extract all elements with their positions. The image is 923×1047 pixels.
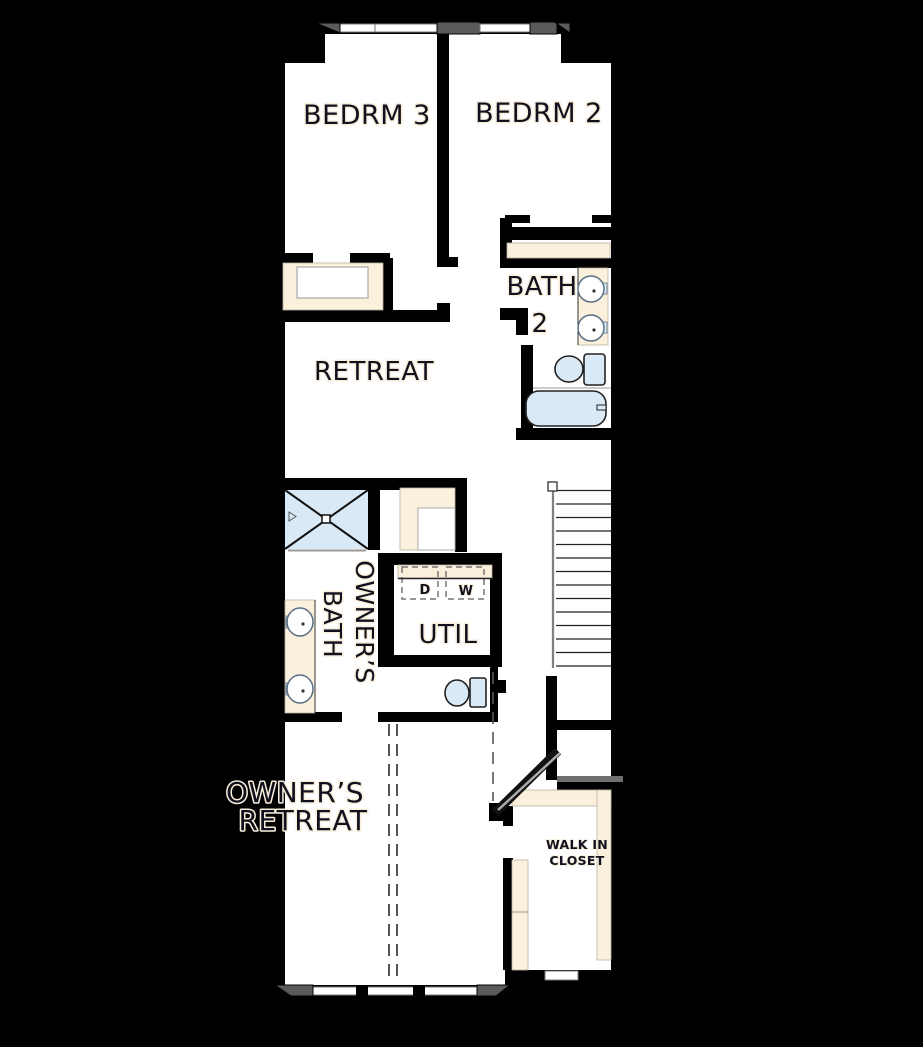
linen-closet (400, 488, 455, 550)
room-label-retreat: RETREAT (314, 357, 434, 387)
room-label-bedrm3: BEDRM 3 (303, 100, 431, 131)
room-label-bath2-line2: 2 (531, 309, 548, 339)
floor-plan-canvas: BEDRM 3 BEDRM 2 BATH 2 RETREAT OWNER’S B… (0, 0, 923, 1047)
bedroom-windows (316, 22, 570, 34)
floor-plan-page: BEDRM 3 BEDRM 2 BATH 2 RETREAT OWNER’S B… (0, 0, 923, 1047)
shower (285, 490, 368, 551)
room-label-owners-bath-line2: BATH (318, 590, 347, 658)
room-label-walk-in-closet-line1: WALK IN (546, 837, 608, 852)
room-label-bath2-line1: BATH (506, 272, 577, 302)
bath2-bathtub (526, 391, 606, 426)
bath2-linen-shelf (507, 243, 610, 258)
room-label-util: UTIL (418, 620, 477, 650)
dryer-label: D (419, 583, 430, 598)
stair-newel-post (548, 482, 557, 491)
room-label-bedrm2: BEDRM 2 (475, 98, 603, 129)
room-label-owners-bath-line1: OWNER’S (350, 560, 379, 684)
room-label-walk-in-closet-line2: CLOSET (549, 853, 604, 868)
room-label-owners-retreat-line2: RETREAT (239, 804, 368, 837)
bedrm3-closet (283, 263, 383, 310)
closet-window (545, 971, 578, 980)
washer-label: W (459, 584, 474, 599)
